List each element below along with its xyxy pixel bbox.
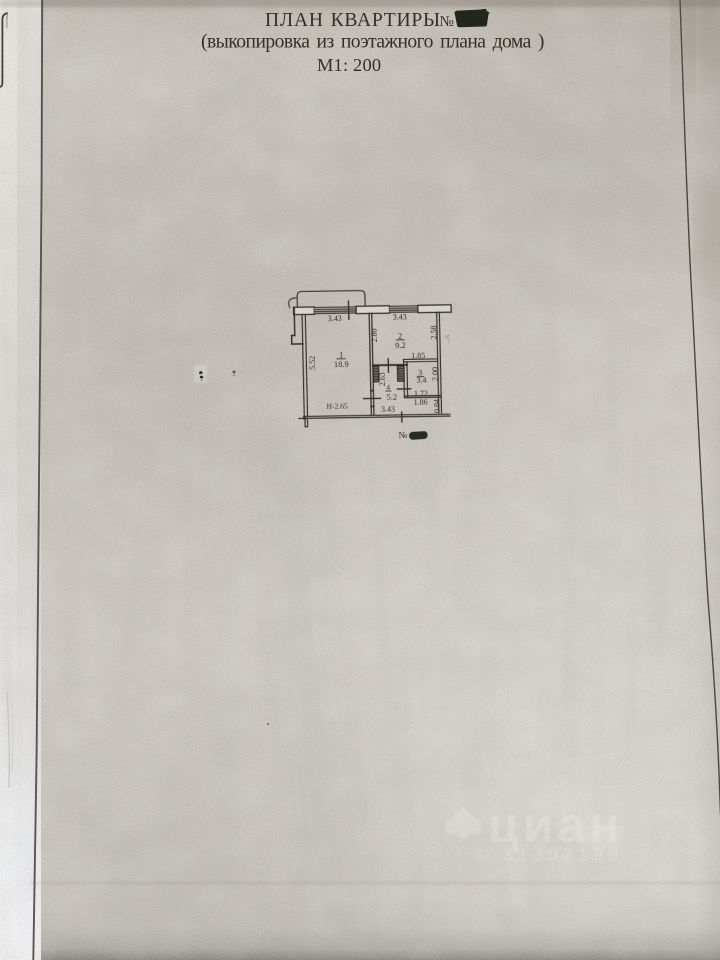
svg-text:3.43: 3.43 (393, 312, 407, 321)
svg-text:18.9: 18.9 (334, 359, 349, 369)
svg-text:2.58: 2.58 (429, 325, 438, 339)
svg-text:№: № (398, 430, 407, 440)
svg-text:1.86: 1.86 (414, 398, 428, 407)
svg-text:1.85: 1.85 (411, 351, 425, 360)
svg-text:3.43: 3.43 (328, 314, 342, 323)
svg-text:3.4: 3.4 (416, 376, 426, 385)
svg-text:3.43: 3.43 (381, 405, 395, 414)
svg-text:9.2: 9.2 (395, 340, 406, 350)
svg-text:5.2: 5.2 (386, 392, 397, 402)
svg-text:(выкопировка из поэтажного п: (выкопировка из поэтажного плана дома ) (201, 32, 544, 53)
svg-text:2.80: 2.80 (370, 328, 379, 342)
svg-text:№: № (440, 14, 454, 30)
svg-text:Н-2.65: Н-2.65 (327, 402, 348, 411)
svg-text:ПЛАН КВАРТИРЫ: ПЛАН КВАРТИРЫ (265, 10, 441, 31)
svg-text:2.00: 2.00 (431, 367, 440, 381)
svg-text:0.84: 0.84 (433, 399, 442, 413)
svg-text:5.52: 5.52 (308, 356, 317, 370)
svg-text:© 31302199: © 31302199 (474, 845, 623, 866)
svg-text:М1: 200: М1: 200 (317, 55, 381, 75)
svg-text:-.6: -.6 (443, 335, 452, 344)
svg-text:1: 1 (339, 350, 343, 359)
